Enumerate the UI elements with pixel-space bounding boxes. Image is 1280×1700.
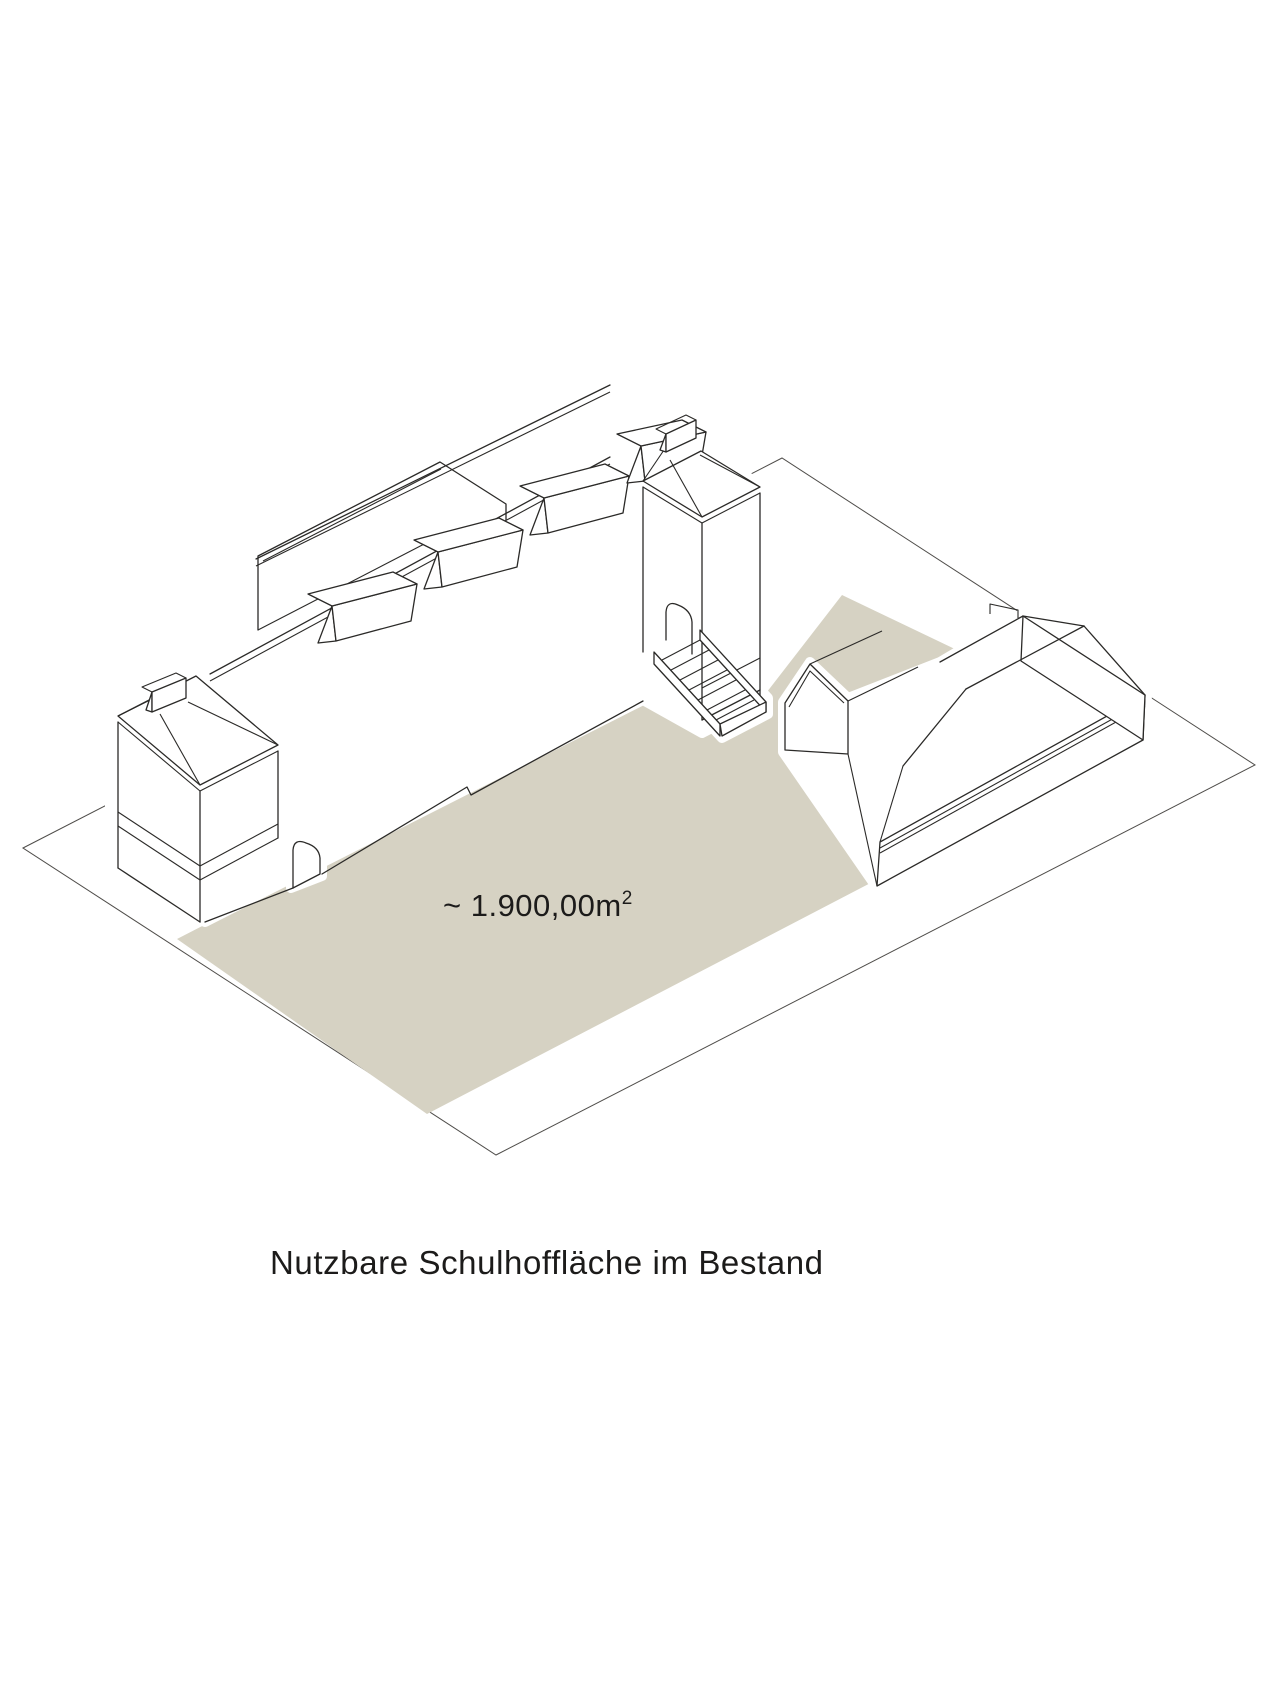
axonometric-diagram: ~ 1.900,00m2 Nutzbare Schulhoffläche im … <box>0 0 1280 1700</box>
diagram-page: ~ 1.900,00m2 Nutzbare Schulhoffläche im … <box>0 0 1280 1700</box>
area-label: ~ 1.900,00m2 <box>443 888 633 923</box>
diagram-caption: Nutzbare Schulhoffläche im Bestand <box>270 1244 824 1281</box>
